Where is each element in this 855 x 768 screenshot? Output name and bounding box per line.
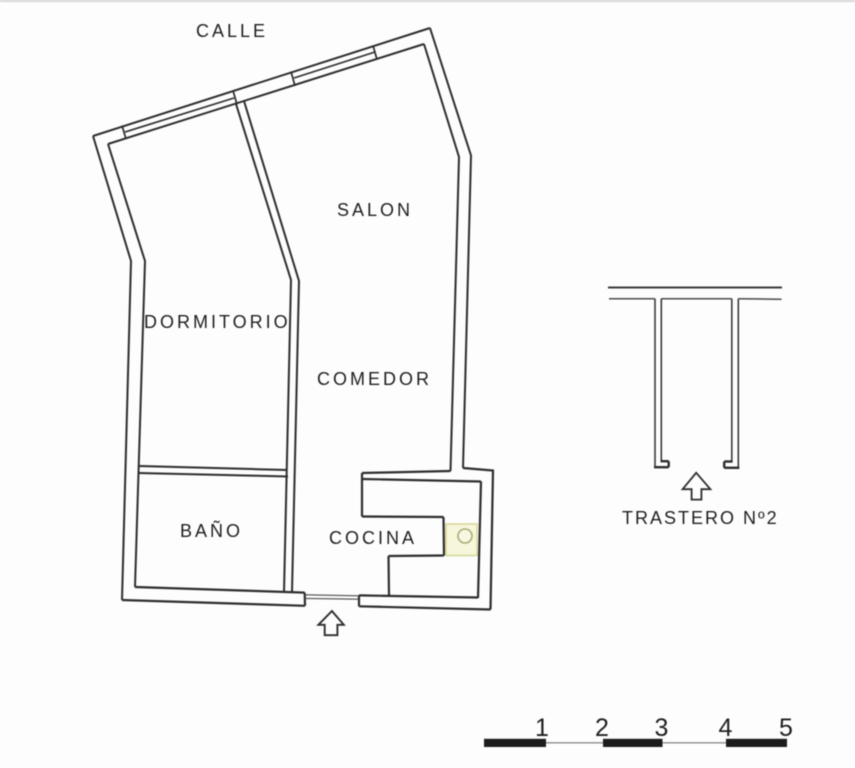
svg-text:5: 5 <box>779 714 793 742</box>
svg-text:COMEDOR: COMEDOR <box>317 369 432 389</box>
svg-text:SALON: SALON <box>337 200 413 220</box>
svg-text:DORMITORIO: DORMITORIO <box>144 312 291 332</box>
svg-text:4: 4 <box>719 714 733 742</box>
svg-text:1: 1 <box>535 714 549 742</box>
svg-text:2: 2 <box>595 714 609 742</box>
svg-text:CALLE: CALLE <box>196 21 268 41</box>
svg-text:COCINA: COCINA <box>329 528 417 548</box>
svg-text:BAÑO: BAÑO <box>180 520 243 541</box>
svg-text:TRASTERO Nº2: TRASTERO Nº2 <box>622 508 779 528</box>
svg-text:3: 3 <box>655 714 669 742</box>
